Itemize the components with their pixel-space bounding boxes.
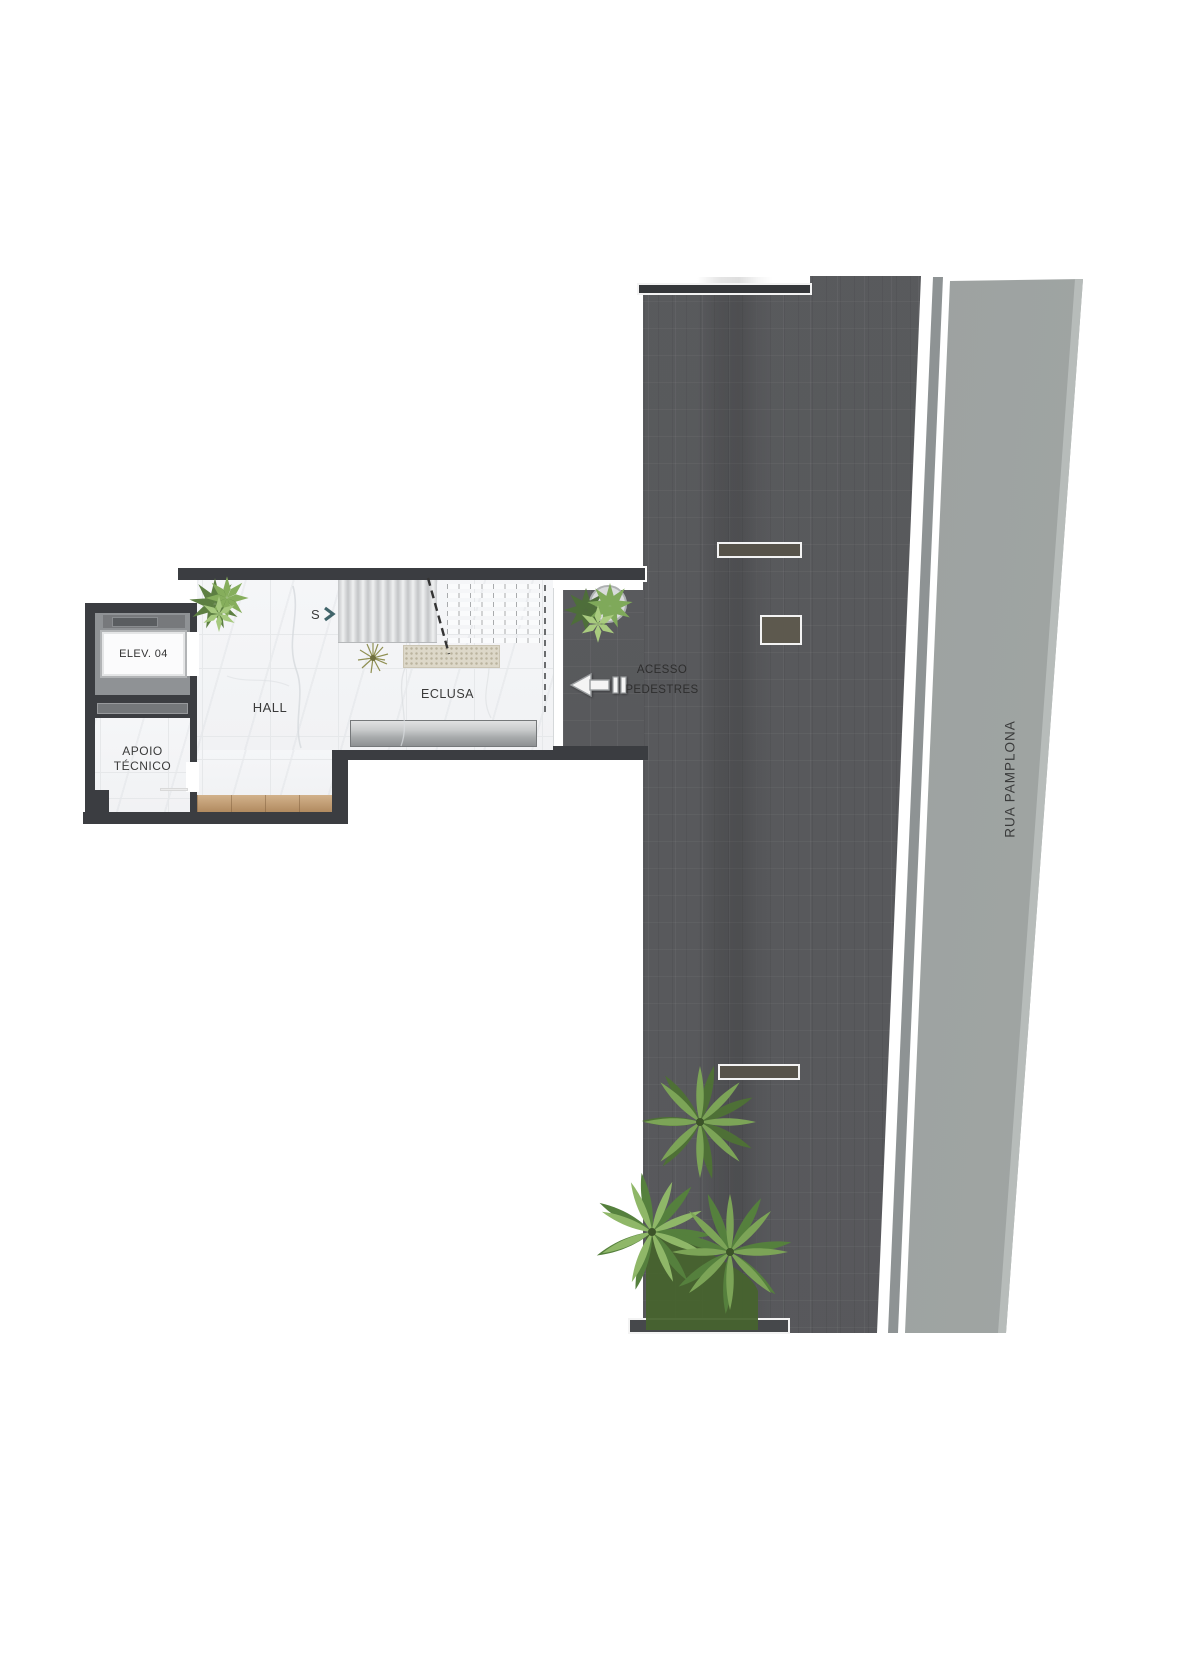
elevator-cab: ELEV. 04: [100, 630, 187, 678]
elevator-counterweight: [112, 617, 158, 627]
threshold-line: [553, 588, 554, 746]
floor-plan: RUA PAMPLONA ACESSO PEDESTRES: [0, 0, 1200, 1679]
entrance-planter-cluster: [558, 580, 642, 652]
apoio-label-line1: APOIO: [98, 744, 187, 759]
service-duct: [97, 703, 188, 714]
olive-tuft-plant: [354, 640, 392, 676]
utility-box: [760, 615, 802, 645]
eclusa-label: ECLUSA: [400, 687, 495, 701]
apoio-door-leaf: [160, 788, 188, 791]
access-label-line2: PEDESTRES: [612, 684, 712, 696]
wall-pilaster: [95, 790, 109, 812]
wood-floor-strip: [197, 795, 332, 812]
palm-plant-3: [664, 1186, 796, 1318]
palm-plant-1: [638, 1060, 762, 1184]
apoio-label: APOIO TÉCNICO: [98, 744, 187, 774]
stairs-upper-flight-dashed: [447, 580, 540, 643]
street-name-label: RUA PAMPLONA: [1002, 720, 1017, 838]
walkway-edge-line-top: [639, 294, 643, 589]
hall-plant: [186, 572, 260, 640]
stair-direction-marker: S: [311, 604, 345, 624]
stair-direction-label: S: [311, 607, 320, 622]
eclusa-boundary-dashed-line: [544, 580, 546, 712]
building-bottom-wall-left: [83, 812, 348, 824]
gate-bar-top: [637, 283, 812, 295]
drain-grate-upper: [717, 542, 802, 558]
elevator-label: ELEV. 04: [119, 648, 168, 660]
stairs-cut-line: [420, 570, 460, 660]
hall-floor-extension: [197, 750, 332, 795]
hall-label: HALL: [215, 700, 325, 715]
chevron-right-icon: [321, 605, 337, 623]
street-surface: [0, 0, 1200, 1679]
street-name: RUA PAMPLONA: [962, 728, 1057, 830]
apoio-label-line2: TÉCNICO: [98, 759, 187, 774]
access-label-line1: ACESSO: [618, 664, 706, 676]
